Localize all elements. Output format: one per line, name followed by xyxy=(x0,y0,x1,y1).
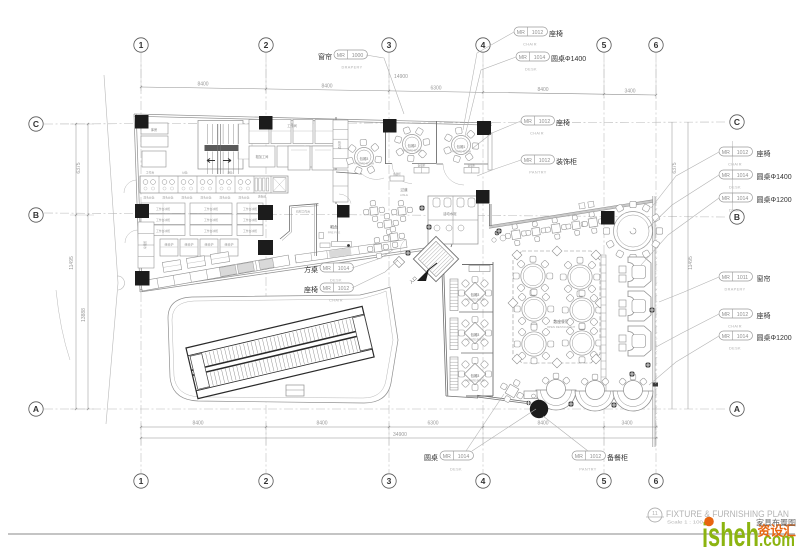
svg-text:DRAPERY: DRAPERY xyxy=(724,288,745,292)
svg-text:1: 1 xyxy=(139,40,144,50)
svg-text:双头炒灶: 双头炒灶 xyxy=(219,196,230,200)
svg-text:1012: 1012 xyxy=(737,150,749,156)
svg-text:工作台冰柜: 工作台冰柜 xyxy=(156,218,170,222)
svg-text:1012: 1012 xyxy=(532,30,544,36)
svg-text:DRAPERY: DRAPERY xyxy=(341,66,362,70)
svg-text:CHAIR: CHAIR xyxy=(523,43,537,47)
svg-text:石材工作台: 石材工作台 xyxy=(296,210,310,214)
svg-text:活动水泥: 活动水泥 xyxy=(443,211,457,216)
svg-text:组合炉: 组合炉 xyxy=(184,242,193,247)
svg-text:工作台: 工作台 xyxy=(146,171,155,175)
svg-text:装饰柜: 装饰柜 xyxy=(556,157,577,166)
svg-text:6: 6 xyxy=(654,40,659,50)
svg-text:备餐柜: 备餐柜 xyxy=(418,164,426,168)
svg-text:包厢1: 包厢1 xyxy=(457,144,466,149)
svg-text:8400: 8400 xyxy=(537,421,548,427)
svg-text:备餐柜: 备餐柜 xyxy=(393,172,401,176)
svg-text:PRIVATE ROOM: PRIVATE ROOM xyxy=(465,298,485,302)
svg-text:5: 5 xyxy=(602,476,607,486)
svg-text:PRIVATE ROOM: PRIVATE ROOM xyxy=(451,150,472,154)
svg-text:过道: 过道 xyxy=(400,187,408,192)
svg-text:1000: 1000 xyxy=(352,53,364,59)
svg-text:PRIVATE ROOM: PRIVATE ROOM xyxy=(402,149,423,153)
svg-text:工作台冰柜: 工作台冰柜 xyxy=(156,229,170,233)
svg-text:双头炒灶: 双头炒灶 xyxy=(238,196,249,200)
svg-text:3400: 3400 xyxy=(624,88,635,94)
svg-text:11495: 11495 xyxy=(688,256,694,270)
svg-text:4: 4 xyxy=(481,476,486,486)
svg-text:2: 2 xyxy=(264,476,269,486)
svg-text:MR: MR xyxy=(722,334,730,340)
svg-text:6375: 6375 xyxy=(672,162,678,173)
svg-text:窗帘: 窗帘 xyxy=(757,274,771,283)
svg-text:3: 3 xyxy=(387,476,392,486)
svg-text:包厢3: 包厢3 xyxy=(471,332,480,337)
svg-text:A: A xyxy=(33,404,39,414)
svg-text:CHAIR: CHAIR xyxy=(728,163,742,167)
svg-text:圆桌Φ1200: 圆桌Φ1200 xyxy=(757,195,792,204)
svg-text:MR: MR xyxy=(524,158,532,164)
svg-text:散座餐厅: 散座餐厅 xyxy=(553,319,568,324)
svg-text:Scale 1 : 100: Scale 1 : 100 xyxy=(667,520,703,526)
svg-text:双头炒灶: 双头炒灶 xyxy=(181,196,192,200)
svg-text:14900: 14900 xyxy=(394,74,408,80)
svg-text:工作台冰柜: 工作台冰柜 xyxy=(204,218,218,222)
svg-text:包厢3: 包厢3 xyxy=(471,373,480,378)
svg-text:汤灶: 汤灶 xyxy=(227,171,233,175)
svg-text:DESK: DESK xyxy=(729,347,741,351)
svg-text:圆桌Φ1400: 圆桌Φ1400 xyxy=(757,172,792,181)
svg-text:6300: 6300 xyxy=(427,421,438,427)
svg-text:工作台冰柜: 工作台冰柜 xyxy=(156,207,170,211)
svg-text:MR: MR xyxy=(524,119,532,125)
svg-text:1014: 1014 xyxy=(737,173,749,179)
svg-text:MR: MR xyxy=(519,55,527,61)
svg-text:DESK: DESK xyxy=(525,68,537,72)
svg-text:B: B xyxy=(734,212,740,222)
svg-text:CHAIR: CHAIR xyxy=(728,325,742,329)
svg-text:3: 3 xyxy=(387,40,392,50)
svg-text:双头炒灶: 双头炒灶 xyxy=(162,196,173,200)
svg-text:家具布置图: 家具布置图 xyxy=(756,518,796,528)
svg-text:CHAIR: CHAIR xyxy=(329,299,343,303)
svg-text:1011: 1011 xyxy=(737,275,748,281)
svg-text:冷藏柜: 冷藏柜 xyxy=(143,241,147,250)
svg-text:1012: 1012 xyxy=(338,286,350,292)
svg-text:B: B xyxy=(33,210,39,220)
svg-text:工作台冰柜: 工作台冰柜 xyxy=(243,207,257,211)
svg-text:DESK: DESK xyxy=(729,186,741,190)
svg-text:工作台冰柜: 工作台冰柜 xyxy=(243,229,257,233)
svg-text:5: 5 xyxy=(602,40,607,50)
svg-text:座椅: 座椅 xyxy=(304,285,318,294)
svg-text:PRIVATE ROOM: PRIVATE ROOM xyxy=(465,379,485,383)
svg-text:A: A xyxy=(734,404,740,414)
svg-text:炒灶: 炒灶 xyxy=(182,171,188,175)
svg-text:MR: MR xyxy=(323,286,331,292)
svg-text:1014: 1014 xyxy=(737,196,749,202)
svg-text:8400: 8400 xyxy=(537,87,548,93)
svg-text:MR: MR xyxy=(722,275,730,281)
svg-text:PRE FILE: PRE FILE xyxy=(328,231,341,235)
svg-text:方桌: 方桌 xyxy=(304,265,318,274)
svg-text:MR: MR xyxy=(337,53,345,59)
svg-text:1012: 1012 xyxy=(590,454,602,460)
svg-text:1012: 1012 xyxy=(539,158,551,164)
svg-text:洗碗池: 洗碗池 xyxy=(258,195,267,199)
svg-text:8400: 8400 xyxy=(192,421,203,427)
svg-text:1012: 1012 xyxy=(539,119,551,125)
svg-text:座椅: 座椅 xyxy=(757,149,771,158)
svg-text:1014: 1014 xyxy=(737,334,749,340)
svg-text:DESK: DESK xyxy=(729,209,741,213)
svg-text:11: 11 xyxy=(652,511,658,517)
svg-text:PANTRY: PANTRY xyxy=(529,171,547,175)
svg-text:8400: 8400 xyxy=(316,421,327,427)
svg-text:工作台冰柜: 工作台冰柜 xyxy=(204,207,218,211)
svg-text:1012: 1012 xyxy=(737,312,749,318)
svg-text:MR: MR xyxy=(722,173,730,179)
svg-text:双头炒灶: 双头炒灶 xyxy=(200,196,211,200)
svg-text:包厢2: 包厢2 xyxy=(408,143,417,148)
svg-text:3400: 3400 xyxy=(621,421,632,427)
svg-text:组合炉: 组合炉 xyxy=(204,242,213,247)
svg-text:圆桌: 圆桌 xyxy=(424,453,438,462)
svg-text:6375: 6375 xyxy=(76,162,82,173)
svg-text:吧台: 吧台 xyxy=(330,224,338,230)
svg-text:窗帘: 窗帘 xyxy=(318,52,332,61)
svg-text:包厢3: 包厢3 xyxy=(360,156,369,161)
svg-text:MR: MR xyxy=(575,454,583,460)
svg-text:座椅: 座椅 xyxy=(556,118,570,127)
svg-text:MR: MR xyxy=(517,30,525,36)
svg-text:库房: 库房 xyxy=(151,127,157,132)
svg-text:8400: 8400 xyxy=(197,82,208,88)
svg-text:8400: 8400 xyxy=(321,84,332,90)
svg-text:1014: 1014 xyxy=(534,55,546,61)
svg-text:圆桌Φ1400: 圆桌Φ1400 xyxy=(551,54,586,63)
svg-text:C: C xyxy=(734,117,740,127)
svg-text:备餐柜: 备餐柜 xyxy=(468,164,476,168)
svg-text:座椅: 座椅 xyxy=(757,311,771,320)
svg-text:PRIVATE ROOM: PRIVATE ROOM xyxy=(465,338,485,342)
svg-text:工作间: 工作间 xyxy=(287,123,297,128)
svg-text:1014: 1014 xyxy=(458,454,470,460)
svg-text:MR: MR xyxy=(722,196,730,202)
svg-text:34900: 34900 xyxy=(393,432,407,438)
svg-text:CHAIR: CHAIR xyxy=(530,132,544,136)
svg-text:圆桌Φ1200: 圆桌Φ1200 xyxy=(757,333,792,342)
svg-text:组合炉: 组合炉 xyxy=(224,242,233,247)
svg-text:6: 6 xyxy=(654,476,659,486)
svg-text:工作台冰柜: 工作台冰柜 xyxy=(204,229,218,233)
svg-text:工作台冰柜: 工作台冰柜 xyxy=(243,218,257,222)
svg-text:MR: MR xyxy=(443,454,451,460)
svg-text:双头炒灶: 双头炒灶 xyxy=(143,196,154,200)
svg-text:C: C xyxy=(33,119,39,129)
svg-text:MR: MR xyxy=(722,150,730,156)
svg-text:座椅: 座椅 xyxy=(549,29,563,38)
svg-text:包厢3: 包厢3 xyxy=(471,292,480,297)
svg-text:13888: 13888 xyxy=(81,308,87,322)
svg-text:2: 2 xyxy=(264,40,269,50)
svg-text:PANTRY: PANTRY xyxy=(579,468,597,472)
svg-text:DESK: DESK xyxy=(330,279,342,283)
svg-text:MR: MR xyxy=(323,266,331,272)
svg-text:OPEN RESTAURANT: OPEN RESTAURANT xyxy=(547,325,576,329)
svg-text:粗加工间: 粗加工间 xyxy=(256,154,269,159)
svg-text:MR: MR xyxy=(722,312,730,318)
svg-text:1014: 1014 xyxy=(338,266,350,272)
svg-text:DESK: DESK xyxy=(450,468,462,472)
svg-text:PRIVATE ROOM: PRIVATE ROOM xyxy=(354,162,375,166)
svg-text:1: 1 xyxy=(139,476,144,486)
svg-text:备餐柜: 备餐柜 xyxy=(607,453,628,462)
svg-text:AISLE: AISLE xyxy=(400,193,408,197)
svg-text:11495: 11495 xyxy=(69,256,75,270)
svg-text:6300: 6300 xyxy=(430,85,441,91)
svg-text:酒水柜: 酒水柜 xyxy=(338,141,342,150)
svg-text:组合炉: 组合炉 xyxy=(164,242,173,247)
